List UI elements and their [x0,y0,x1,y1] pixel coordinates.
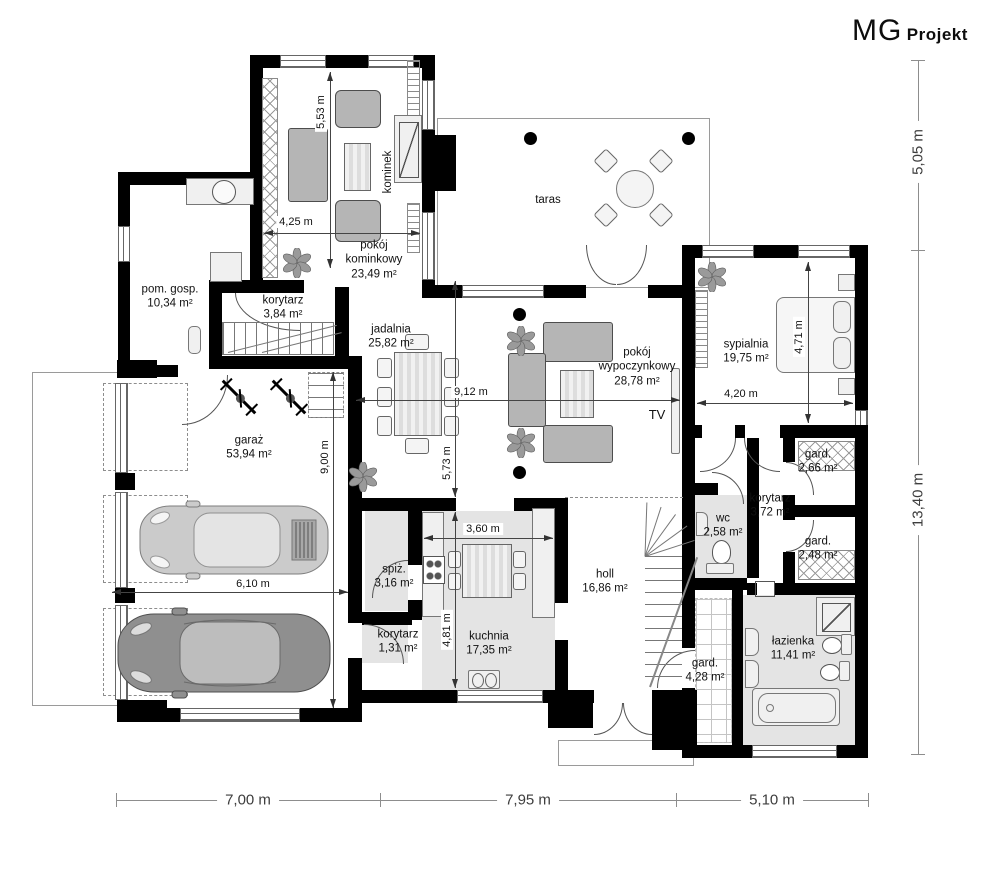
driveway-outline [32,372,33,706]
wall [732,583,743,745]
entry-door-arc [594,703,623,735]
dim-arrow [327,72,333,81]
window [280,55,326,68]
chimney [422,135,456,191]
dim-tick [116,793,117,807]
bidet [820,664,840,681]
bathtub-drain [766,704,774,712]
window [180,708,300,722]
dim-arrow [544,535,553,541]
wall [775,583,868,595]
dim-tick [911,60,925,61]
room-name: spiż. [382,564,406,576]
room-name: pokój kominkowy [346,239,403,265]
armchair [335,90,381,128]
wall [335,287,349,356]
wall [783,552,795,583]
wall [555,640,568,693]
room-area: 25,82 m² [368,338,413,350]
hall-dashed-edge [565,497,683,498]
room-area: 28,78 m² [614,375,659,387]
wall [348,658,362,710]
room-label-korytarz-c: korytarz 1,31 m² [378,628,419,657]
room-area: 4,28 m² [686,672,725,684]
logo-mg: MG [852,14,902,47]
outer-dim-label: 5,05 m [910,121,927,183]
dining-chair [405,438,429,454]
room-label-spiz: spiż. 3,16 m² [375,563,414,592]
nightstand [838,274,855,291]
dim-line [333,372,334,708]
dim-label: 6,10 m [233,578,273,590]
stove [423,556,445,584]
room-name: gard. [805,536,831,548]
room-name: łazienka [772,636,814,648]
dim-arrow [805,414,811,423]
dim-arrow [671,397,680,403]
kitchen-chair [513,573,526,590]
dim-arrow [411,230,420,236]
folding-door [755,581,775,597]
tall-cabinets [532,508,555,618]
entry-pier [548,690,593,728]
dim-arrow [697,400,706,406]
label-kominek: kominek [381,151,395,194]
dining-chair [377,416,392,436]
dim-line [424,538,553,539]
coffee-table [344,143,371,191]
hall-stairs [645,556,682,688]
dim-label: 4,81 m [441,610,453,650]
room-name: gard. [692,658,718,670]
column [513,466,526,479]
room-name: korytarz [750,493,791,505]
dim-arrow [452,679,458,688]
dining-chair [444,416,459,436]
dim-arrow [330,372,336,381]
dim-arrow [452,281,458,290]
dim-line [455,512,456,688]
room-area: 16,86 m² [582,583,627,595]
room-label-jadalnia: jadalnia 25,82 m² [368,323,413,352]
wall [780,425,868,438]
dim-tick [676,793,677,807]
dim-line [330,72,331,268]
pillow [833,301,851,333]
room-area: 1,31 m² [379,643,418,655]
driveway-outline [32,372,118,373]
dim-label: 5,53 m [315,92,327,132]
nightstand [838,378,855,395]
dim-arrow [805,262,811,271]
utility-sink [188,326,201,354]
room-label-pokoj-wypoczynkowy: pokój wypoczynkowy 28,78 m² [587,345,687,388]
dim-arrow [452,512,458,521]
wall [682,425,702,438]
kitchen-chair [513,551,526,568]
sink-bowl [472,673,484,688]
dim-arrow [327,259,333,268]
room-label-gard-c: gard. 4,28 m² [686,657,725,686]
room-area: 2,48 m² [799,550,838,562]
toilet-tank [841,634,852,655]
window [422,80,435,130]
dim-label: 9,12 m [451,386,491,398]
dining-table [394,352,442,436]
garage-pillar [115,473,135,490]
room-name: pokój wypoczynkowy [599,346,676,372]
fireplace-firebox [399,122,419,178]
dim-label: 4,71 m [793,317,805,357]
room-area: 17,35 m² [466,645,511,657]
wall [783,505,868,517]
terrace-table [616,170,654,208]
room-label-korytarz-b: korytarz 3,72 m² [750,492,791,521]
dim-label: 9,00 m [319,437,331,477]
dim-label: 5,73 m [441,443,453,483]
dim-line [112,592,348,593]
room-name: wc [716,513,730,525]
wall [118,172,130,377]
dim-line [808,262,809,423]
dim-label: 4,25 m [276,216,316,228]
room-area: 2,58 m² [704,527,743,539]
bike-icon [212,370,266,424]
room-name: sypialnia [724,339,769,351]
room-label-korytarz-a: korytarz 3,84 m² [263,294,304,323]
shower-drain-arrow [822,603,851,632]
window [702,245,754,258]
room-name: kuchnia [469,631,509,643]
armchair [335,200,381,242]
boiler [210,252,242,282]
bidet-base [839,661,850,681]
car [114,607,334,699]
column [513,308,526,321]
wall [855,245,868,758]
dim-arrow [452,488,458,497]
room-name: korytarz [378,629,419,641]
window [798,245,850,258]
garage-door [115,492,128,588]
room-name: holl [596,569,614,581]
garage-door [115,383,128,473]
entry-door-arc [623,703,652,735]
room-name: jadalnia [371,324,411,336]
wall [209,356,362,369]
room-label-gard-b: gard. 2,48 m² [799,535,838,564]
dim-tick [380,793,381,807]
toilet [712,540,731,564]
dim-line [697,403,853,404]
floor-plan: MG Projekt [0,0,995,883]
bathroom-sink [745,628,759,656]
plant-icon [506,428,536,458]
room-area: 10,34 m² [147,298,192,310]
label-tv: TV [649,407,666,423]
pillow [833,337,851,369]
room-area: 3,72 m² [751,507,790,519]
wall [555,498,568,603]
dining-chair [377,358,392,378]
garage-pillar [117,360,157,378]
wall [544,285,586,298]
plant-icon [506,326,536,356]
mg-projekt-logo: MG Projekt [852,14,968,48]
bathroom-sink [745,660,759,688]
window [118,226,130,262]
window [457,690,543,703]
shelf [407,60,420,117]
sofa [288,128,328,202]
room-label-wc: wc 2,58 m² [704,512,743,541]
dim-arrow [339,589,348,595]
outer-dim-label: 13,40 m [910,465,927,535]
dim-tick [868,793,869,807]
car [136,500,332,580]
washing-machine [212,180,236,204]
wardrobe [262,78,278,278]
door-arc [700,438,736,472]
room-name: pom. gosp. [142,284,199,296]
window [422,212,435,280]
room-label-pom-gosp: pom. gosp. 10,34 m² [142,283,199,312]
kitchen-island [462,544,512,598]
room-label-garaz: garaż 53,94 m² [226,434,271,463]
logo-projekt: Projekt [907,25,968,44]
plant-icon [697,262,727,292]
dim-arrow [264,230,273,236]
outer-dim-label: 5,10 m [741,792,803,809]
sofa [543,425,613,463]
outer-dim-label: 7,00 m [217,792,279,809]
room-name: garaż [235,435,264,447]
terrace-outline [437,118,710,288]
entry-pier [652,690,697,750]
room-area: 19,75 m² [723,353,768,365]
dim-tick [911,250,925,251]
dining-chair [377,387,392,407]
dresser [695,290,708,368]
toilet [822,637,842,654]
dim-arrow [424,535,433,541]
room-label-pokoj-kominkowy: pokój kominkowy 23,49 m² [336,238,412,281]
plant-icon [348,462,378,492]
wall [783,438,795,462]
outer-dim-label: 7,95 m [497,792,559,809]
wall [408,498,422,565]
dim-arrow [330,699,336,708]
dining-chair [444,358,459,378]
room-name: gard. [805,449,831,461]
dim-arrow [112,589,121,595]
room-label-sypialnia: sypialnia 19,75 m² [723,338,768,367]
room-area: 53,94 m² [226,449,271,461]
room-area: 23,49 m² [351,268,396,280]
dim-line [356,400,680,401]
bike-icon [262,370,316,424]
room-label-kuchnia: kuchnia 17,35 m² [466,630,511,659]
window [752,745,837,758]
stair-fan-line [645,526,688,557]
room-area: 3,16 m² [375,578,414,590]
dim-label: 4,20 m [721,388,761,400]
room-label-lazienka: łazienka 11,41 m² [771,635,816,664]
room-label-holl: holl 16,86 m² [582,568,627,597]
label-taras: taras [535,193,561,207]
dim-arrow [844,400,853,406]
wall [362,612,412,625]
toilet-tank [706,563,734,574]
driveway-outline [32,705,118,706]
terrace-column [682,132,695,145]
plant-icon [282,248,312,278]
door-arc [712,472,744,504]
room-area: 3,84 m² [264,309,303,321]
dim-arrow [356,397,365,403]
wall [735,425,745,438]
room-label-gard-a: gard. 2,66 m² [799,448,838,477]
wall [362,690,457,703]
room-area: 11,41 m² [771,650,816,662]
room-area: 2,66 m² [799,463,838,475]
dim-label: 3,60 m [463,523,503,535]
room-name: korytarz [263,295,304,307]
window [462,285,544,298]
terrace-column [524,132,537,145]
dim-tick [911,754,925,755]
dim-line [264,233,420,234]
sink-bowl [485,673,497,688]
sofa [508,353,546,427]
